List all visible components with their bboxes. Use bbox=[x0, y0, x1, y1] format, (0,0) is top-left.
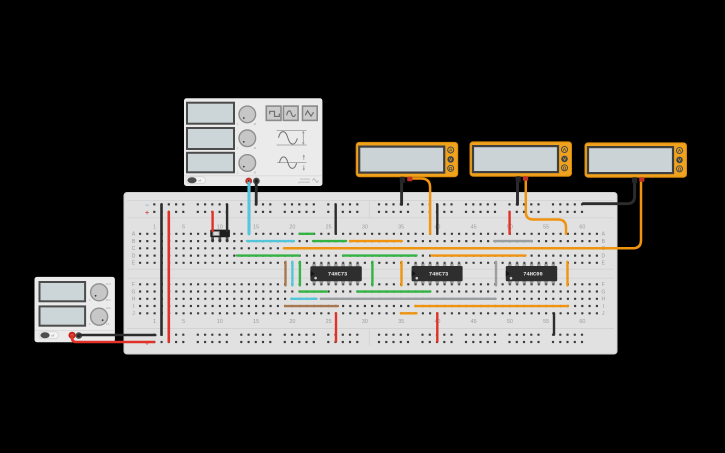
svg-text:off: off bbox=[198, 179, 201, 183]
svg-text:H: H bbox=[132, 297, 136, 303]
svg-text:I: I bbox=[133, 304, 134, 310]
svg-text:H: H bbox=[601, 297, 605, 303]
svg-text:45: 45 bbox=[471, 319, 477, 325]
svg-text:35: 35 bbox=[398, 224, 404, 230]
svg-text:−: − bbox=[145, 202, 149, 209]
svg-text:30: 30 bbox=[362, 319, 368, 325]
svg-text:Ω: Ω bbox=[563, 166, 567, 171]
svg-text:Ω: Ω bbox=[678, 167, 682, 172]
svg-text:30: 30 bbox=[362, 224, 368, 230]
svg-text:5: 5 bbox=[182, 319, 185, 325]
svg-text:F: F bbox=[602, 282, 605, 288]
svg-text:74HC73: 74HC73 bbox=[328, 272, 347, 278]
svg-text:G: G bbox=[601, 289, 605, 295]
svg-text:generator: generator bbox=[298, 180, 310, 184]
svg-text:+: + bbox=[145, 210, 149, 217]
svg-text:D: D bbox=[601, 253, 605, 259]
svg-text:G: G bbox=[132, 289, 136, 295]
svg-text:off: off bbox=[51, 334, 54, 338]
svg-text:20: 20 bbox=[289, 224, 295, 230]
svg-text:D: D bbox=[132, 253, 136, 259]
svg-text:55: 55 bbox=[543, 224, 549, 230]
svg-text:50: 50 bbox=[507, 319, 513, 325]
svg-text:F: F bbox=[132, 282, 135, 288]
svg-text:1: 1 bbox=[153, 224, 156, 230]
svg-text:60: 60 bbox=[579, 224, 585, 230]
svg-text:25: 25 bbox=[326, 224, 332, 230]
svg-text:1: 1 bbox=[153, 319, 156, 325]
svg-text:15: 15 bbox=[253, 224, 259, 230]
svg-text:25: 25 bbox=[326, 319, 332, 325]
svg-text:10 V: 10 V bbox=[106, 284, 111, 286]
svg-text:10 A: 10 A bbox=[106, 307, 111, 310]
svg-text:10: 10 bbox=[217, 319, 223, 325]
svg-text:74HC00: 74HC00 bbox=[523, 271, 542, 277]
svg-text:Ω: Ω bbox=[449, 166, 453, 171]
svg-text:20: 20 bbox=[289, 319, 295, 325]
svg-text:3 A: 3 A bbox=[106, 323, 110, 326]
svg-text:74HC73: 74HC73 bbox=[429, 271, 448, 277]
svg-text:55: 55 bbox=[543, 319, 549, 325]
svg-text:5: 5 bbox=[182, 224, 185, 230]
svg-text:15: 15 bbox=[253, 319, 259, 325]
svg-text:I: I bbox=[603, 304, 604, 310]
svg-text:60: 60 bbox=[579, 319, 585, 325]
svg-text:35: 35 bbox=[398, 319, 404, 325]
svg-text:60 V: 60 V bbox=[106, 300, 111, 302]
svg-text:45: 45 bbox=[471, 224, 477, 230]
svg-text:C: C bbox=[132, 246, 136, 252]
svg-text:10: 10 bbox=[217, 224, 223, 230]
